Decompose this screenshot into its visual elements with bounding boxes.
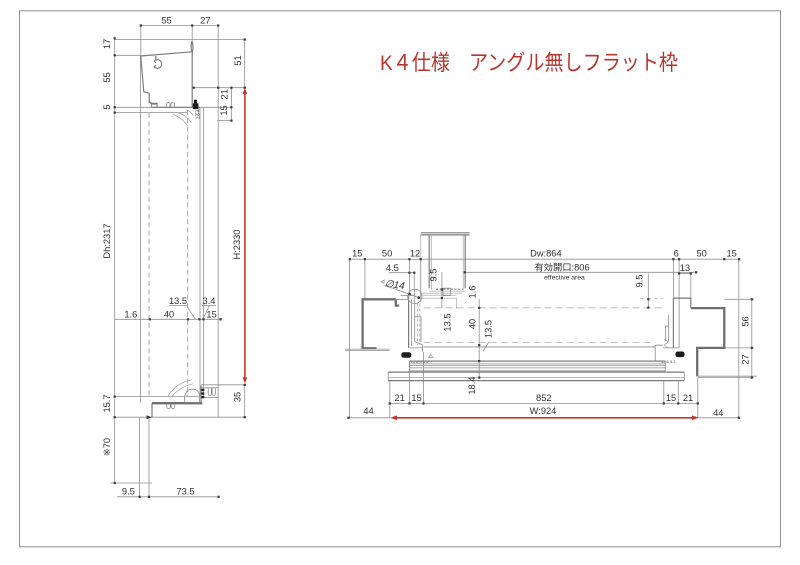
svg-text:55: 55 — [161, 16, 171, 26]
svg-text:40: 40 — [164, 309, 174, 319]
svg-text:9.5: 9.5 — [635, 275, 645, 288]
svg-text:50: 50 — [382, 249, 392, 259]
svg-text:15: 15 — [219, 105, 229, 115]
svg-text:15: 15 — [352, 249, 362, 259]
svg-text:44: 44 — [363, 406, 373, 416]
svg-text:17: 17 — [102, 39, 112, 49]
svg-text:3.4: 3.4 — [203, 296, 216, 306]
svg-text:1.6: 1.6 — [124, 309, 137, 319]
svg-text:effective area: effective area — [544, 275, 585, 282]
svg-text:15.7: 15.7 — [102, 394, 112, 412]
svg-text:18.4: 18.4 — [467, 377, 477, 395]
svg-text:13.5: 13.5 — [442, 313, 452, 331]
svg-text:15: 15 — [411, 393, 421, 403]
svg-text:K４仕様 アングル無しフラット枠: K４仕様 アングル無しフラット枠 — [380, 51, 678, 75]
svg-text:21: 21 — [220, 89, 230, 99]
svg-text:2.5 4.5: 2.5 4.5 — [196, 106, 201, 119]
svg-text:9.5: 9.5 — [122, 487, 135, 497]
svg-text:44: 44 — [713, 408, 723, 418]
svg-text:21: 21 — [395, 393, 405, 403]
svg-text:15: 15 — [727, 249, 737, 259]
svg-text:6: 6 — [674, 249, 679, 259]
svg-text:13.5: 13.5 — [484, 320, 494, 338]
svg-text:有効開口:806: 有効開口:806 — [534, 262, 589, 273]
svg-text:27: 27 — [200, 16, 210, 26]
svg-text:W:924: W:924 — [530, 406, 557, 416]
svg-text:9.5: 9.5 — [429, 269, 439, 282]
svg-text:Dh:2317: Dh:2317 — [102, 223, 112, 258]
svg-text:27: 27 — [740, 354, 750, 364]
svg-text:1.6: 1.6 — [468, 286, 478, 299]
svg-text:35: 35 — [232, 392, 242, 402]
svg-text:73.5: 73.5 — [176, 487, 194, 497]
svg-text:Dw:864: Dw:864 — [530, 249, 562, 259]
svg-text:15: 15 — [206, 309, 216, 319]
svg-text:12: 12 — [410, 249, 420, 259]
svg-text:21: 21 — [683, 393, 693, 403]
svg-text:852: 852 — [536, 393, 552, 403]
svg-text:40: 40 — [468, 319, 478, 329]
svg-text:※70: ※70 — [102, 438, 112, 456]
svg-text:H:2330: H:2330 — [232, 230, 242, 260]
svg-text:56: 56 — [740, 316, 750, 326]
svg-text:50: 50 — [697, 249, 707, 259]
svg-text:5: 5 — [102, 104, 112, 109]
svg-text:15: 15 — [666, 393, 676, 403]
svg-text:55: 55 — [102, 72, 112, 82]
svg-text:13: 13 — [680, 263, 690, 273]
svg-text:51: 51 — [233, 55, 243, 65]
svg-text:4.5: 4.5 — [386, 263, 399, 273]
svg-text:13.5: 13.5 — [169, 296, 187, 306]
